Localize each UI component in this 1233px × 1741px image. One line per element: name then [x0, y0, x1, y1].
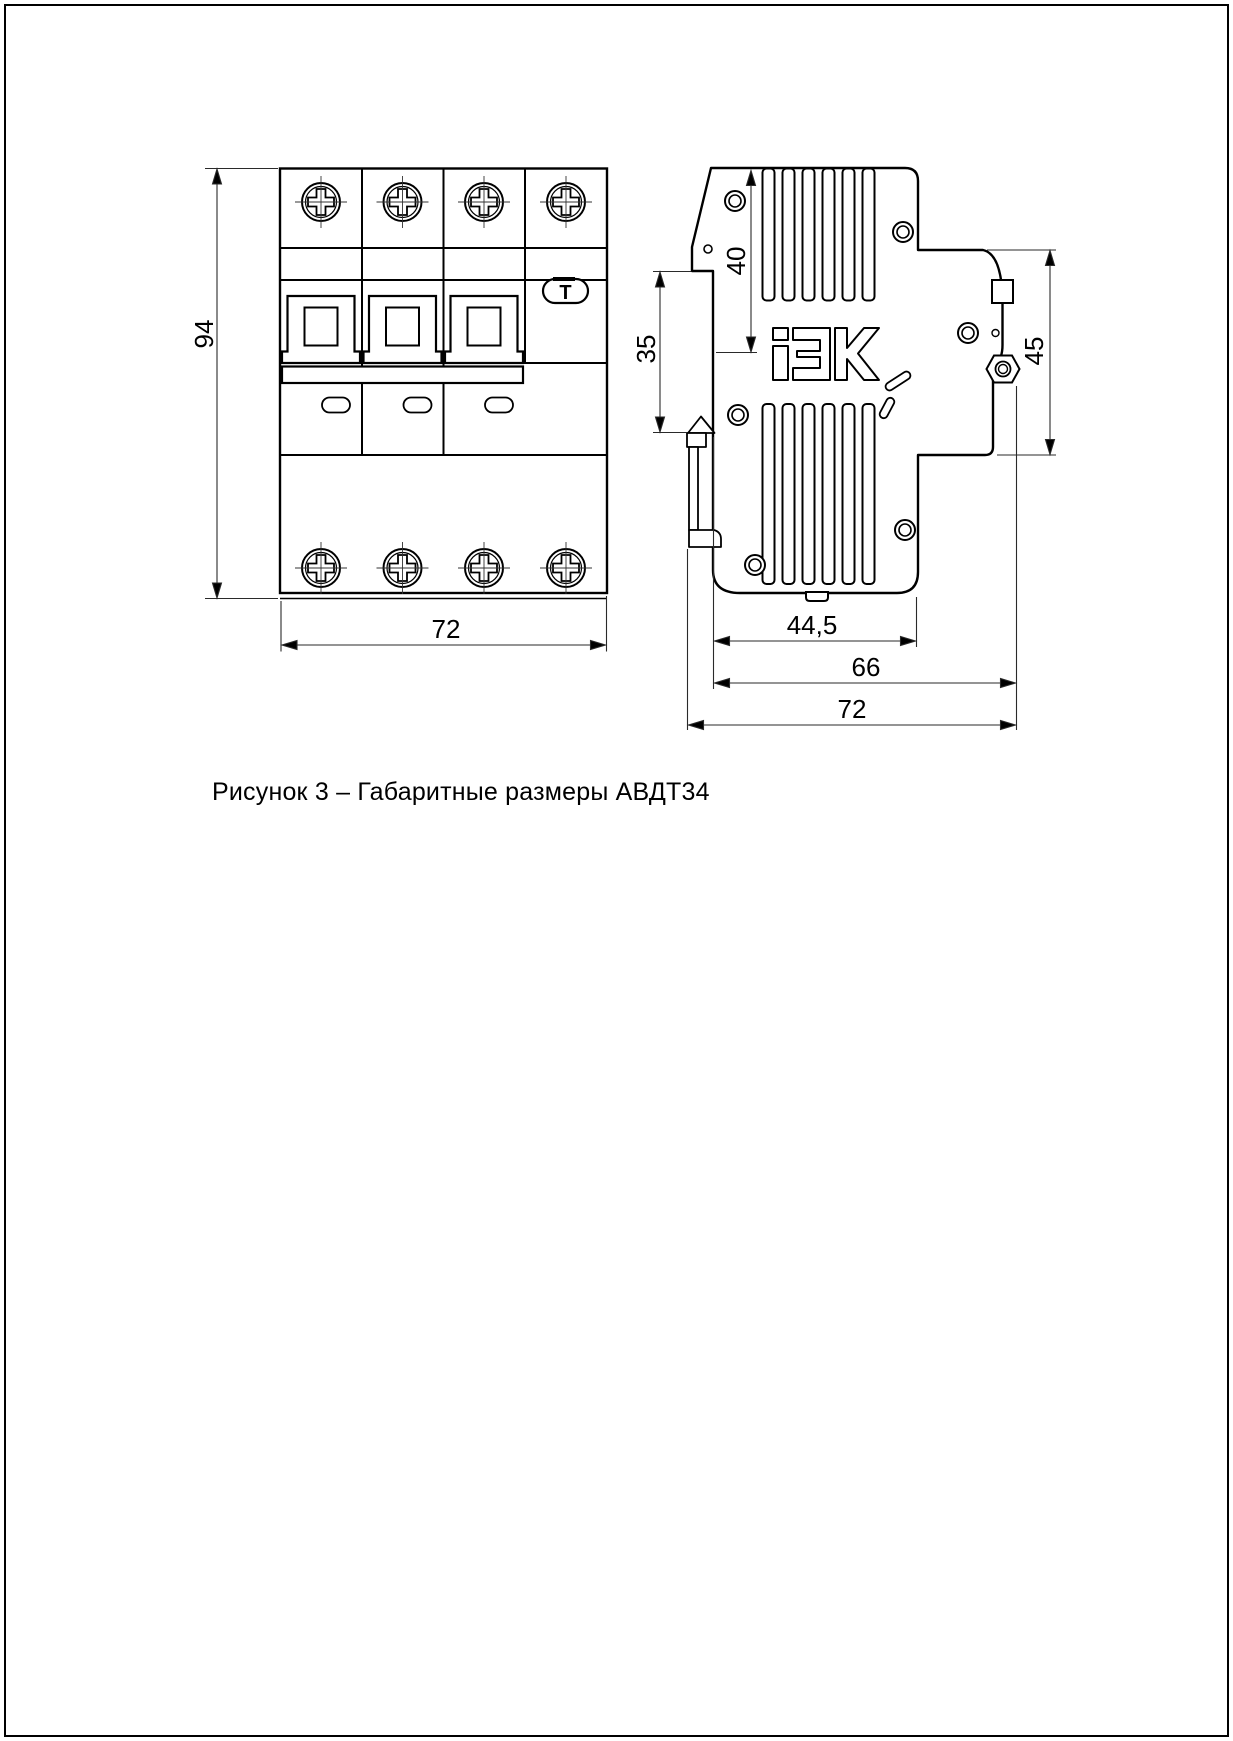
dim-label: 35 [631, 335, 661, 364]
toggle-handle [282, 296, 360, 363]
bottom-tab [806, 592, 828, 601]
dim-label: 72 [432, 614, 461, 644]
dim-front-width: 72 [281, 596, 607, 652]
rivet [745, 555, 765, 575]
indicator-window [485, 398, 513, 413]
rivet [895, 520, 915, 540]
dim-label: 44,5 [787, 610, 838, 640]
pin-hole [704, 245, 712, 253]
dim-label: 72 [838, 694, 867, 724]
toggle-handle [364, 296, 442, 363]
dim-front-height: 94 [189, 169, 278, 599]
rivet [728, 405, 748, 425]
dim-label: 45 [1019, 337, 1049, 366]
test-button: Т [543, 279, 588, 304]
indicator-window [322, 398, 350, 413]
padlock-eye [987, 356, 1020, 383]
toggle-handle [445, 296, 523, 363]
side-test-button [992, 280, 1013, 303]
figure-caption: Рисунок 3 – Габаритные размеры АВДТ34 [212, 778, 710, 807]
dim-label: 66 [852, 652, 881, 682]
dim-side-35: 35 [631, 272, 691, 433]
test-button-label: Т [559, 282, 571, 304]
indicator-window [404, 398, 432, 413]
rivet [893, 222, 913, 242]
rivet [958, 323, 978, 343]
dim-label: 94 [189, 320, 219, 349]
dim-label: 40 [721, 247, 751, 276]
figure-canvas: Т [0, 0, 1233, 1741]
handle-tie-bar [282, 367, 523, 384]
front-view: Т [280, 169, 607, 599]
rivet [725, 191, 745, 211]
pin-hole [992, 330, 999, 337]
side-view [687, 168, 1020, 601]
